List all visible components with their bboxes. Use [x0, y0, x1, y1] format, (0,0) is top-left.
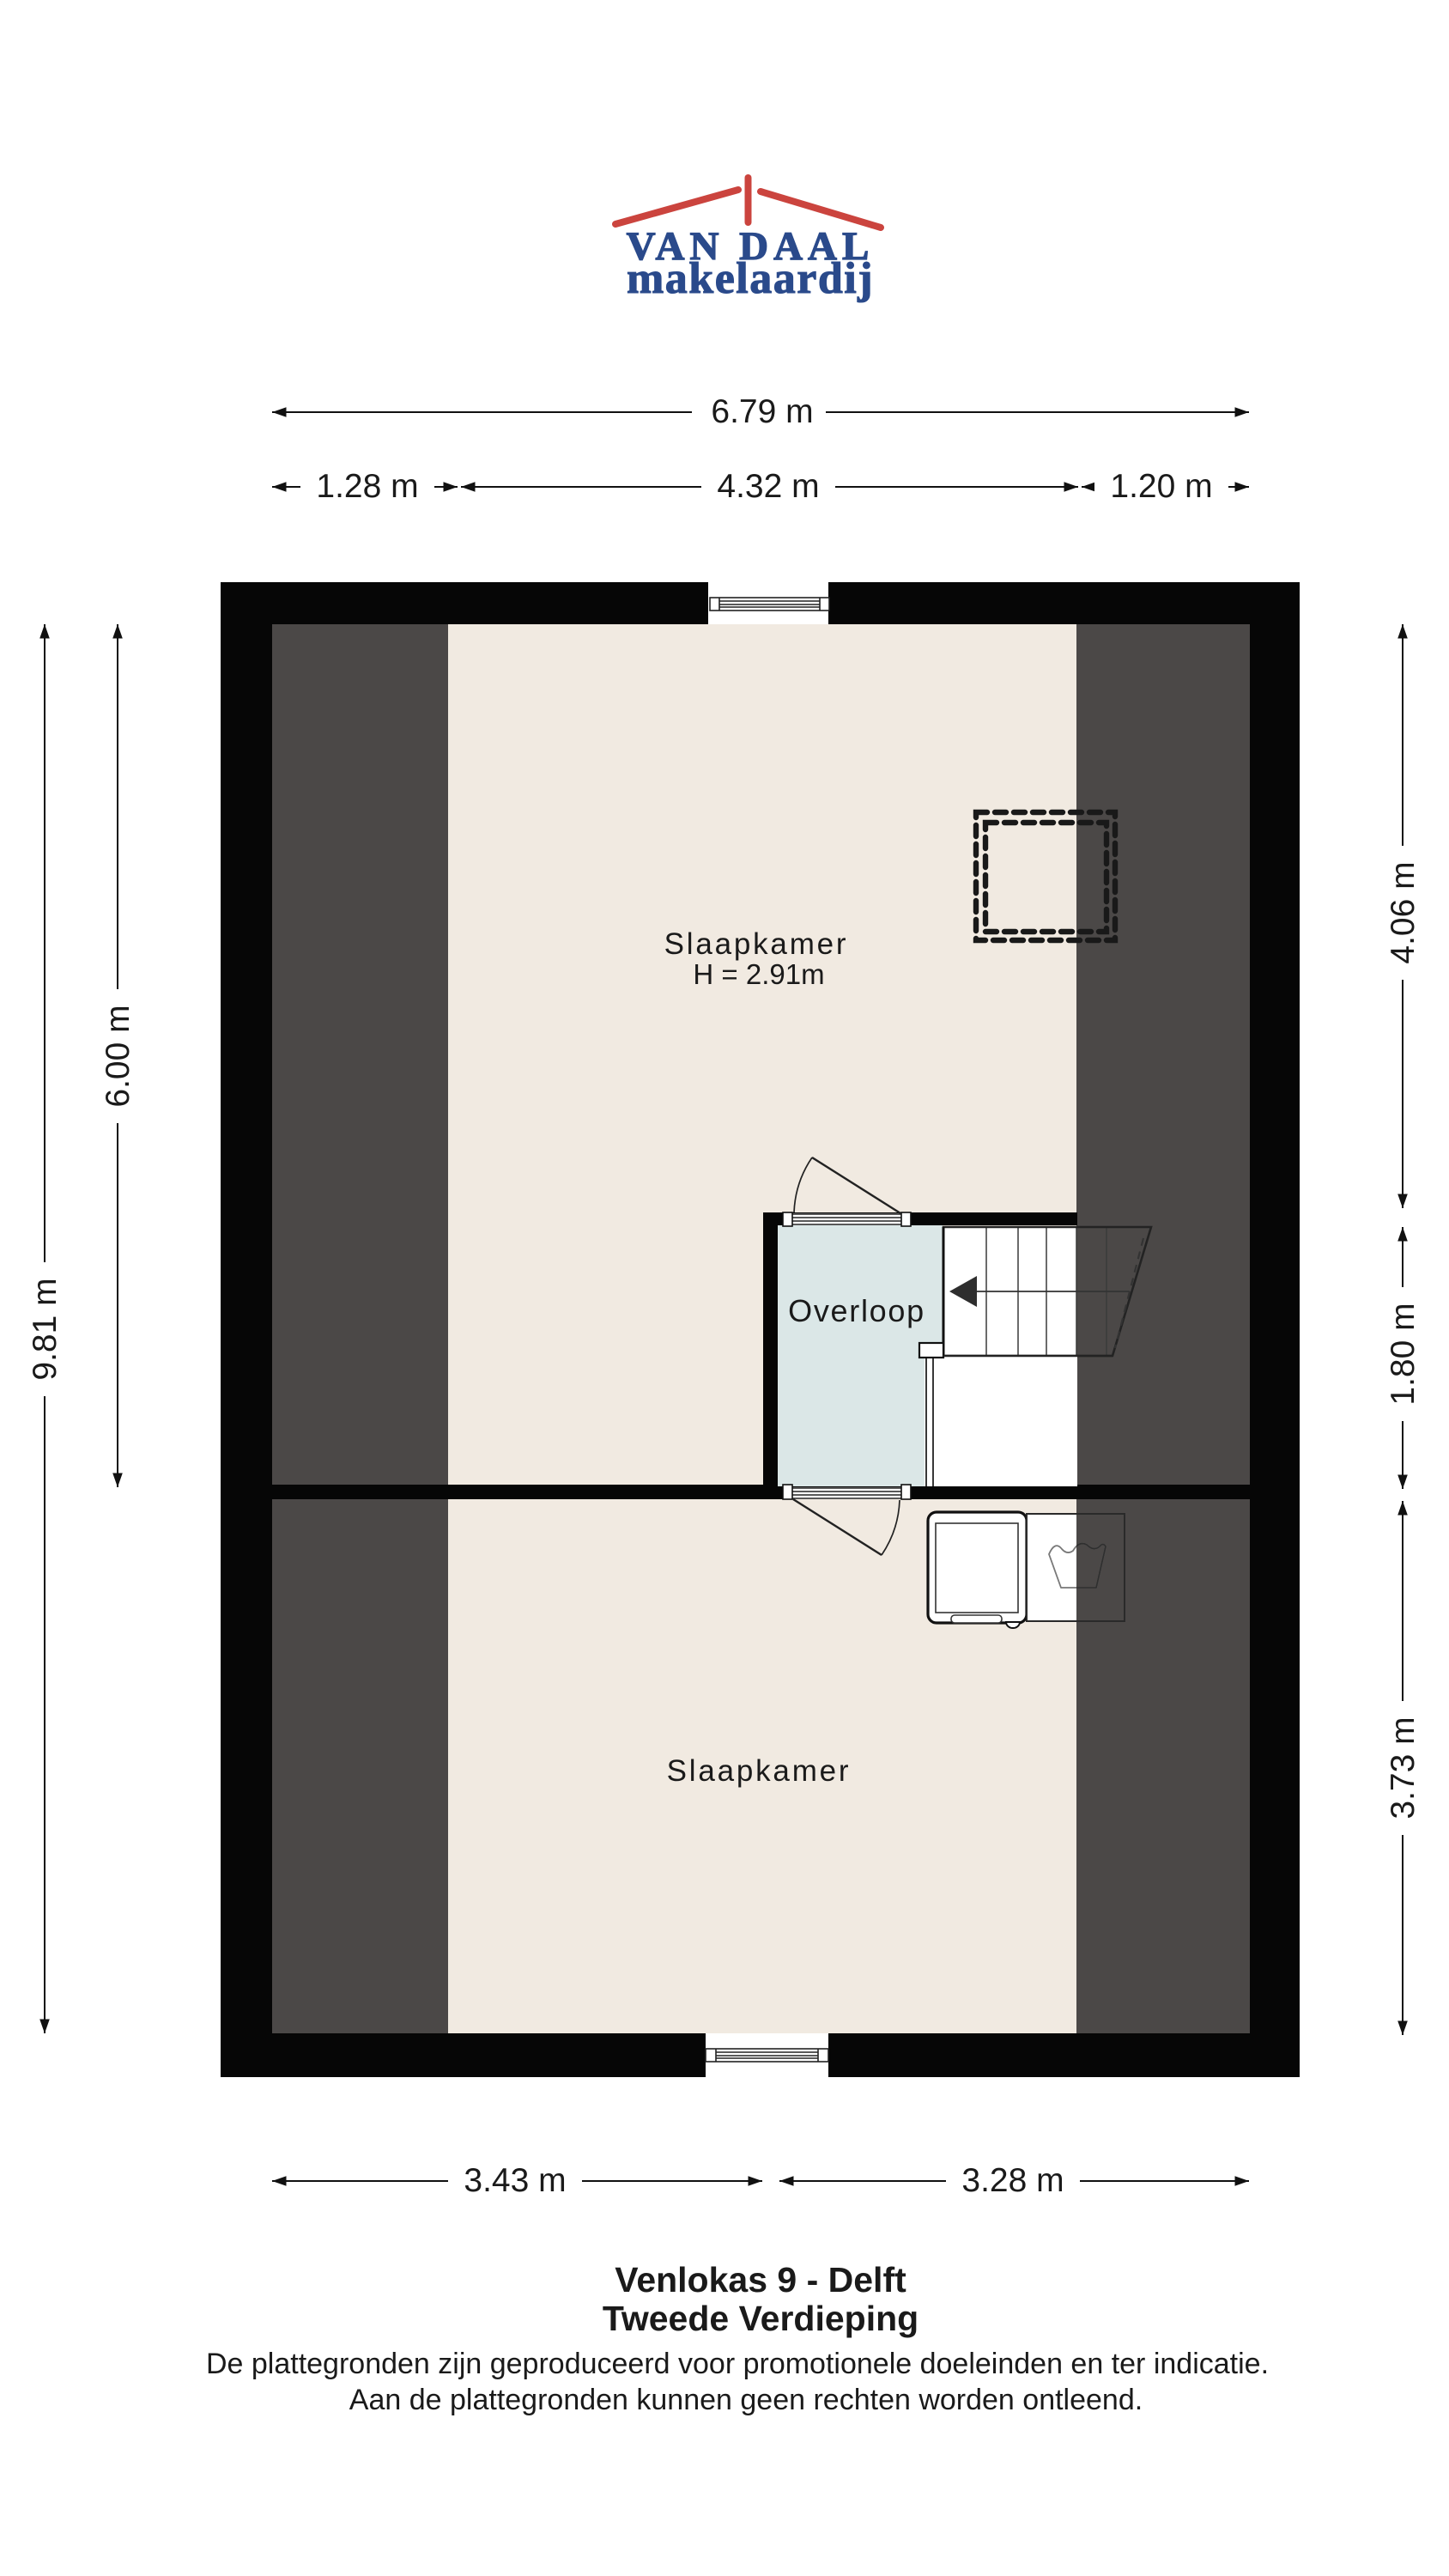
svg-text:6.79 m: 6.79 m [711, 393, 813, 430]
svg-text:De plattegronden zijn geproduc: De plattegronden zijn geproduceerd voor … [206, 2348, 1269, 2380]
svg-text:H = 2.91m: H = 2.91m [693, 958, 824, 990]
svg-text:1.20 m: 1.20 m [1110, 468, 1212, 505]
svg-text:3.28 m: 3.28 m [961, 2162, 1064, 2199]
svg-text:Aan de plattegronden kunnen ge: Aan de plattegronden kunnen geen rechten… [349, 2384, 1143, 2416]
svg-text:3.73 m: 3.73 m [1385, 1716, 1422, 1819]
svg-text:Slaapkamer: Slaapkamer [667, 1754, 852, 1788]
svg-text:1.80 m: 1.80 m [1385, 1303, 1422, 1405]
svg-text:Venlokas 9 - Delft: Venlokas 9 - Delft [615, 2260, 906, 2300]
svg-text:Overloop: Overloop [788, 1293, 925, 1328]
svg-text:4.32 m: 4.32 m [717, 468, 819, 505]
svg-text:6.00 m: 6.00 m [100, 1005, 136, 1107]
svg-text:9.81 m: 9.81 m [27, 1278, 64, 1380]
svg-text:3.43 m: 3.43 m [464, 2162, 566, 2199]
svg-text:1.28 m: 1.28 m [316, 468, 418, 505]
svg-text:makelaardij: makelaardij [627, 254, 874, 303]
svg-text:Slaapkamer: Slaapkamer [664, 927, 849, 961]
svg-text:Tweede Verdieping: Tweede Verdieping [603, 2299, 919, 2338]
svg-text:4.06 m: 4.06 m [1385, 861, 1422, 963]
